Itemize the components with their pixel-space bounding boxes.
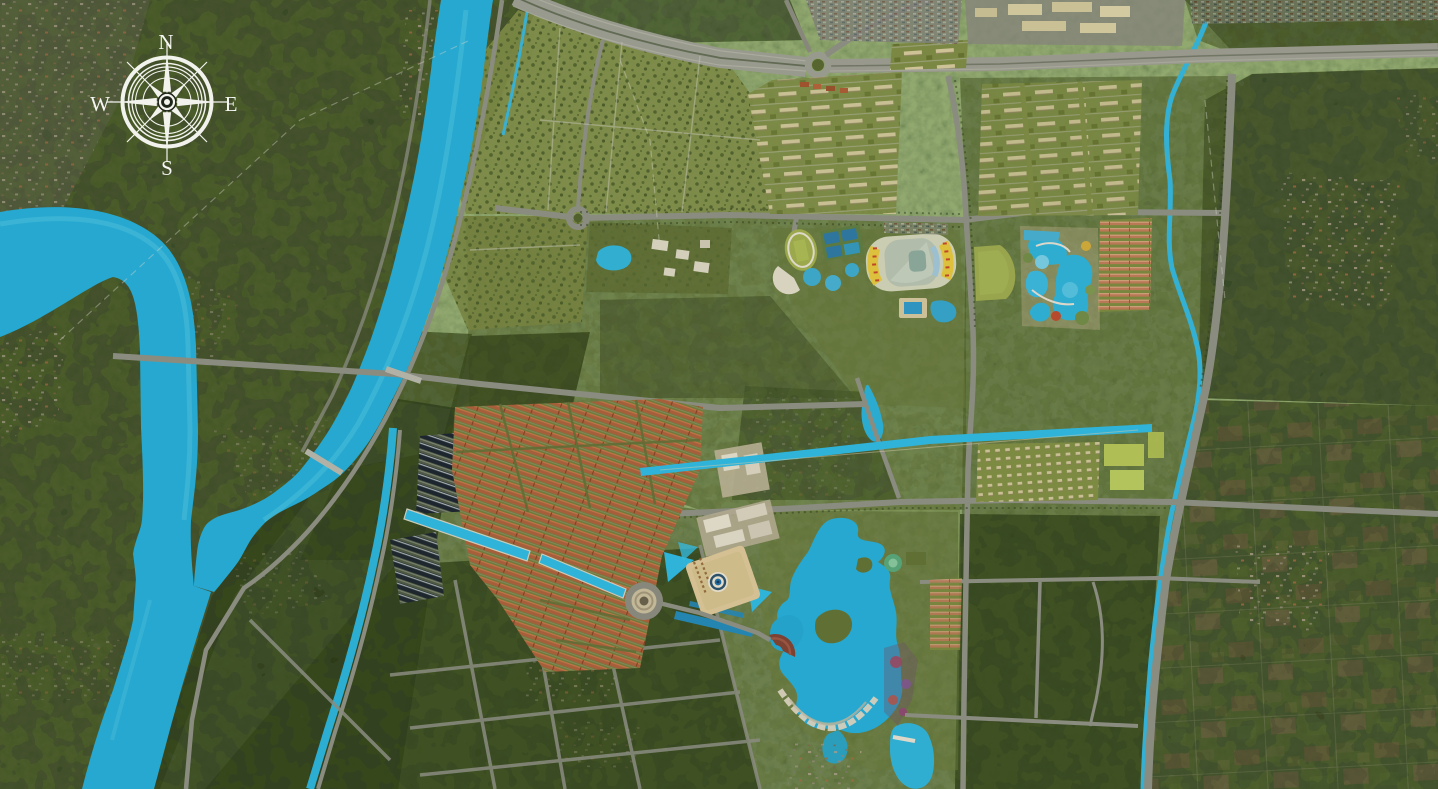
svg-text:N: N [158,30,173,54]
svg-text:W: W [90,92,110,116]
svg-text:E: E [225,92,238,116]
svg-text:S: S [161,156,173,180]
